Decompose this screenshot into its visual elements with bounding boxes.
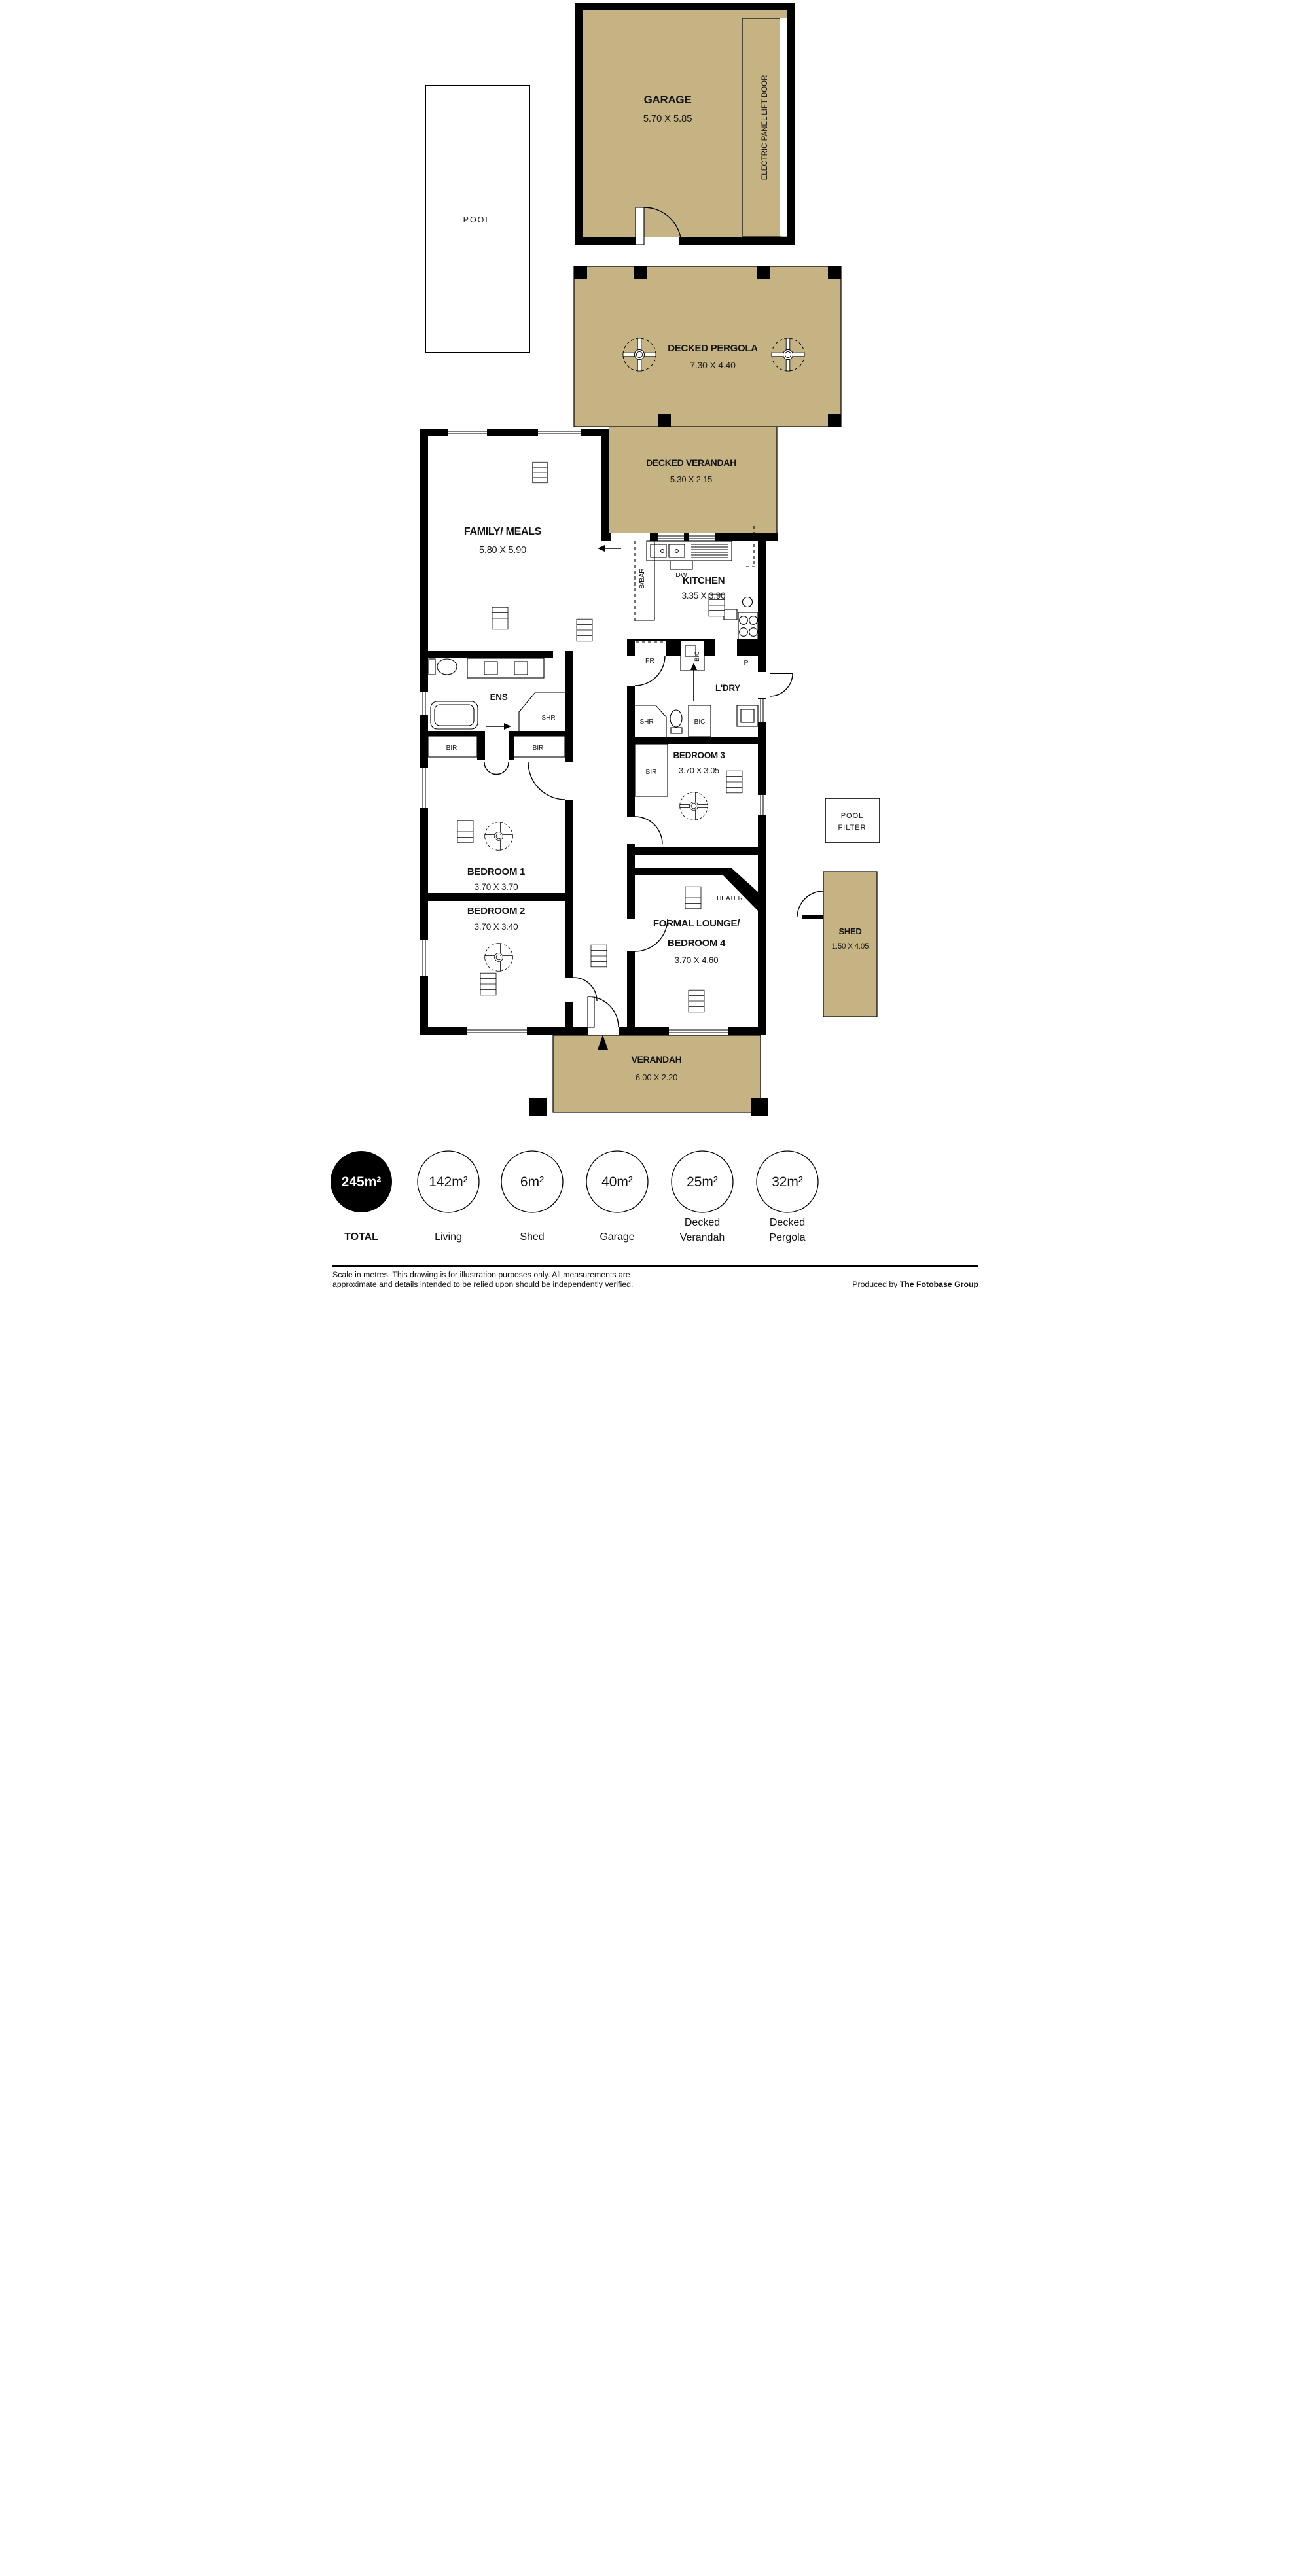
garage-door-note: ELECTRIC PANEL LIFT DOOR bbox=[761, 75, 769, 181]
disclaimer-line-2: approximate and details intended to be r… bbox=[332, 1280, 633, 1288]
badge-label: DeckedVerandah bbox=[680, 1217, 725, 1243]
burner bbox=[749, 616, 758, 625]
garage-label: GARAGE bbox=[644, 94, 692, 106]
kitchen-dims: 3.35 X 3.90 bbox=[682, 591, 726, 601]
pool-filter-label-2: FILTER bbox=[838, 824, 866, 832]
trough-bowl bbox=[741, 709, 754, 722]
bic-upper-label: BIC bbox=[694, 651, 701, 662]
kitchen-label: KITCHEN bbox=[683, 575, 725, 586]
ens-shr-label: SHR bbox=[541, 715, 555, 722]
lounge-label-1: FORMAL LOUNGE/ bbox=[653, 918, 740, 929]
shed-dims: 1.50 X 4.05 bbox=[832, 943, 869, 951]
window bbox=[420, 692, 428, 715]
burner bbox=[749, 628, 758, 637]
bed3-bir-label: BIR bbox=[646, 769, 657, 776]
sink-drain bbox=[661, 550, 664, 553]
robe-door-arc bbox=[484, 762, 497, 775]
lounge-label-2: BEDROOM 4 bbox=[668, 938, 726, 949]
bic-lower-label: BIC bbox=[694, 718, 706, 726]
family-label: FAMILY/ MEALS bbox=[464, 526, 542, 537]
family-dims: 5.80 X 5.90 bbox=[479, 545, 526, 556]
badge-label: Shed bbox=[520, 1231, 544, 1243]
window bbox=[689, 533, 715, 541]
vent-icon bbox=[457, 820, 473, 843]
panel-lift-door bbox=[780, 18, 787, 236]
window bbox=[758, 795, 766, 815]
bath-inner bbox=[435, 705, 474, 726]
decked-verandah-dims: 5.30 X 2.15 bbox=[670, 474, 712, 484]
door-arcs bbox=[484, 656, 823, 1027]
bed1-label: BEDROOM 1 bbox=[467, 866, 525, 877]
verandah-dims: 6.00 X 2.20 bbox=[636, 1072, 677, 1082]
laundry-ext-door-arc bbox=[770, 673, 793, 696]
badge-value: 142m² bbox=[429, 1174, 468, 1190]
lounge-dims: 3.70 X 4.60 bbox=[675, 955, 719, 965]
pantry-label: P bbox=[744, 659, 748, 667]
sink-drain bbox=[675, 550, 679, 553]
vent-icon bbox=[492, 607, 508, 629]
toilet-cistern bbox=[429, 659, 435, 675]
bed1-door-arc bbox=[528, 762, 565, 800]
footer-divider bbox=[332, 1265, 978, 1267]
shed-label: SHED bbox=[839, 926, 862, 936]
badge-value: 245m² bbox=[342, 1174, 382, 1190]
fridge-label: FR bbox=[645, 657, 654, 665]
vanity bbox=[467, 658, 544, 678]
pergola-label: DECKED PERGOLA bbox=[668, 343, 758, 354]
dishwasher-bench bbox=[670, 561, 692, 569]
verandah-entry-arrow-icon bbox=[598, 545, 605, 552]
toilet-cistern bbox=[671, 728, 682, 733]
pool-filter-label-1: POOL bbox=[841, 812, 864, 820]
area-badge-total: 245m² TOTAL bbox=[331, 1151, 392, 1243]
bbar-label: B/BAR bbox=[638, 568, 646, 589]
burner bbox=[743, 597, 753, 607]
vent-icon bbox=[726, 771, 742, 793]
laundry-label: L'DRY bbox=[715, 683, 740, 693]
rear-opening bbox=[715, 639, 737, 656]
heater-label: HEATER bbox=[717, 895, 743, 902]
window bbox=[758, 699, 766, 722]
shower-screen bbox=[519, 692, 565, 731]
burner bbox=[740, 616, 748, 625]
window bbox=[467, 1027, 527, 1035]
badge-label: Living bbox=[435, 1231, 462, 1243]
badge-value: 25m² bbox=[687, 1174, 718, 1190]
ceiling-fan-icon bbox=[772, 338, 804, 371]
floor-plan: GARAGE 5.70 X 5.85 ELECTRIC PANEL LIFT D… bbox=[327, 0, 982, 1288]
area-badge-decked-verandah: 25m² DeckedVerandah bbox=[672, 1151, 733, 1243]
window bbox=[420, 940, 428, 976]
bir-left-label: BIR bbox=[446, 745, 457, 752]
bed3-label: BEDROOM 3 bbox=[673, 750, 725, 760]
ens-arrow-icon bbox=[504, 723, 511, 730]
toilet-icon bbox=[437, 659, 457, 675]
decked-verandah-label: DECKED VERANDAH bbox=[646, 457, 736, 468]
area-badge-living: 142m² Living bbox=[418, 1151, 479, 1243]
bed2-dims: 3.70 X 3.40 bbox=[475, 922, 518, 932]
area-summary: 245m² TOTAL 142m² Living 6m² Shed 40m² G… bbox=[331, 1151, 818, 1243]
laundry-trough bbox=[737, 705, 758, 726]
vent-icon bbox=[689, 990, 704, 1012]
window bbox=[420, 768, 428, 808]
window bbox=[658, 533, 684, 541]
ceiling-fan-icon bbox=[485, 822, 513, 851]
bed2-label: BEDROOM 2 bbox=[467, 906, 525, 917]
producer-credit: Produced by The Fotobase Group bbox=[852, 1280, 978, 1288]
bed3-dims: 3.70 X 3.05 bbox=[679, 766, 719, 775]
vent-icon bbox=[591, 945, 607, 967]
badge-label: DeckedPergola bbox=[769, 1217, 805, 1243]
ens-label: ENS bbox=[490, 692, 508, 702]
ceiling-fan-icon bbox=[623, 338, 656, 371]
badge-value: 6m² bbox=[520, 1174, 544, 1190]
vent-icon bbox=[685, 887, 701, 909]
burner bbox=[740, 628, 748, 637]
bir-right-label: BIR bbox=[533, 745, 544, 752]
pool-label: POOL bbox=[463, 215, 492, 224]
ceiling-fan-icon bbox=[485, 944, 513, 972]
robe-door-arc bbox=[497, 762, 509, 775]
window bbox=[538, 429, 581, 436]
shed-door-arc bbox=[797, 891, 823, 917]
vent-icon bbox=[480, 973, 496, 995]
vent-icon bbox=[577, 619, 592, 641]
floor-plan-page: GARAGE 5.70 X 5.85 ELECTRIC PANEL LIFT D… bbox=[327, 0, 982, 1288]
toilet-icon bbox=[670, 710, 682, 727]
garage-dims: 5.70 X 5.85 bbox=[643, 113, 692, 124]
vent-icon bbox=[533, 462, 548, 483]
basin bbox=[484, 662, 497, 675]
bed1-dims: 3.70 X 3.70 bbox=[475, 882, 518, 892]
bench bbox=[724, 609, 737, 620]
drainer bbox=[691, 544, 728, 557]
area-badge-shed: 6m² Shed bbox=[501, 1151, 563, 1243]
bed3-door-arc bbox=[635, 817, 662, 844]
area-badge-decked-pergola: 32m² DeckedPergola bbox=[757, 1151, 818, 1243]
disclaimer-line-1: Scale in metres. This drawing is for ill… bbox=[332, 1270, 630, 1279]
garage-door-leaf bbox=[636, 207, 644, 245]
dishwasher-label: DW bbox=[675, 571, 687, 579]
badge-value: 40m² bbox=[601, 1174, 633, 1190]
badge-value: 32m² bbox=[772, 1174, 803, 1190]
badge-label: TOTAL bbox=[344, 1231, 378, 1243]
badge-label: Garage bbox=[600, 1231, 634, 1243]
pergola-dims: 7.30 X 4.40 bbox=[690, 360, 736, 370]
verandah-label: VERANDAH bbox=[632, 1054, 682, 1065]
bath bbox=[431, 701, 478, 729]
window bbox=[669, 1027, 728, 1035]
laundry-shr-label: SHR bbox=[639, 718, 653, 726]
fridge-recess bbox=[635, 641, 666, 671]
sink-bowl bbox=[669, 544, 685, 557]
area-badge-garage: 40m² Garage bbox=[586, 1151, 648, 1243]
ceiling-fan-icon bbox=[680, 792, 708, 820]
basin bbox=[514, 662, 528, 675]
front-door-leaf bbox=[588, 997, 594, 1027]
window bbox=[448, 429, 487, 436]
arrows bbox=[486, 545, 759, 1050]
pool-filter-outline bbox=[825, 798, 880, 843]
shed-wall-stub bbox=[802, 915, 823, 919]
